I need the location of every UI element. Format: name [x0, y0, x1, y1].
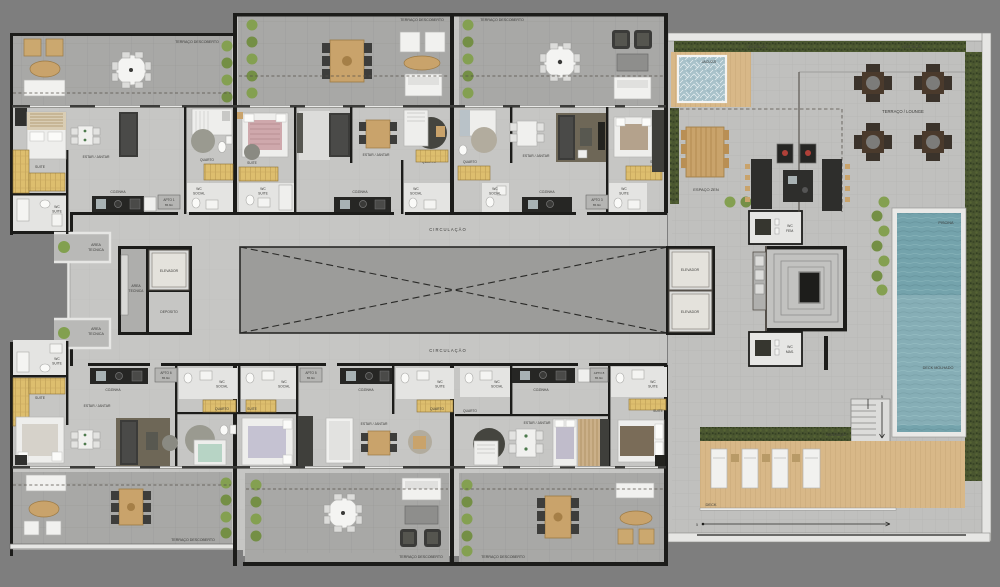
svg-text:WC: WC	[650, 380, 656, 384]
svg-text:ESTAR / JANTAR: ESTAR / JANTAR	[361, 422, 388, 426]
svg-text:QUARTO: QUARTO	[200, 158, 214, 162]
svg-text:PISCINA: PISCINA	[938, 221, 954, 225]
svg-text:AREA: AREA	[91, 327, 101, 331]
svg-text:QUARTO: QUARTO	[463, 409, 477, 413]
svg-text:5: 5	[881, 395, 883, 399]
svg-text:QUARTO: QUARTO	[463, 160, 477, 164]
svg-text:QUARTO: QUARTO	[430, 407, 444, 411]
svg-text:FEM.: FEM.	[786, 229, 794, 233]
svg-text:VEGETAÇÃO: VEGETAÇÃO	[902, 44, 923, 49]
svg-text:DECK MOLHADO: DECK MOLHADO	[923, 366, 954, 370]
svg-text:APTO 8: APTO 8	[594, 371, 605, 375]
svg-text:SOCIAL: SOCIAL	[410, 192, 422, 196]
svg-text:ELEVADOR: ELEVADOR	[681, 268, 700, 272]
svg-text:ESTAR / JANTAR: ESTAR / JANTAR	[84, 404, 111, 408]
svg-text:TERRAÇO / LOUNGE: TERRAÇO / LOUNGE	[882, 109, 924, 114]
svg-text:ESTAR / JANTAR: ESTAR / JANTAR	[524, 421, 551, 425]
svg-text:TERRAÇO DESCOBERTO: TERRAÇO DESCOBERTO	[175, 40, 219, 44]
svg-text:TERRAÇO DESCOBERTO: TERRAÇO DESCOBERTO	[480, 18, 524, 22]
svg-text:SOCIAL: SOCIAL	[489, 192, 501, 196]
svg-text:WC: WC	[787, 224, 793, 228]
svg-text:TECNICA: TECNICA	[88, 248, 104, 252]
svg-text:WC: WC	[219, 380, 225, 384]
svg-text:VEGETAÇÃO: VEGETAÇÃO	[747, 44, 768, 49]
svg-text:65.9m: 65.9m	[307, 376, 316, 380]
svg-text:WC: WC	[621, 187, 627, 191]
svg-text:SUITE: SUITE	[35, 165, 46, 169]
svg-text:SUITE: SUITE	[648, 385, 659, 389]
svg-text:ESTAR / JANTAR: ESTAR / JANTAR	[523, 154, 550, 158]
svg-text:TECNICA: TECNICA	[129, 289, 145, 293]
svg-text:JACUZZI: JACUZZI	[702, 60, 717, 64]
svg-text:APTO 6: APTO 6	[160, 371, 172, 375]
svg-text:VEGETAÇÃO: VEGETAÇÃO	[826, 432, 847, 437]
svg-text:ESPAÇO ZEN: ESPAÇO ZEN	[693, 187, 719, 192]
svg-text:COZINHA: COZINHA	[539, 190, 555, 194]
svg-text:SUITE: SUITE	[435, 385, 446, 389]
svg-text:SUITE: SUITE	[35, 396, 46, 400]
svg-text:SUITE: SUITE	[247, 407, 258, 411]
svg-text:ELEVADOR: ELEVADOR	[160, 269, 179, 273]
svg-text:WC: WC	[437, 380, 443, 384]
svg-text:WC: WC	[54, 357, 60, 361]
svg-text:WC: WC	[260, 187, 266, 191]
svg-text:SOCIAL: SOCIAL	[491, 385, 503, 389]
svg-text:COZINHA: COZINHA	[352, 190, 368, 194]
svg-text:APTO 1: APTO 1	[163, 198, 175, 202]
svg-text:TERRAÇO DESCOBERTO: TERRAÇO DESCOBERTO	[171, 538, 215, 542]
svg-text:DEPOSITO: DEPOSITO	[160, 310, 178, 314]
svg-text:SOCIAL: SOCIAL	[278, 385, 290, 389]
svg-text:WC: WC	[281, 380, 287, 384]
svg-text:APTO 3: APTO 3	[591, 198, 603, 202]
svg-text:65.9m: 65.9m	[162, 376, 171, 380]
svg-text:WC: WC	[787, 345, 793, 349]
svg-text:65.9m: 65.9m	[593, 203, 602, 207]
svg-text:COZINHA: COZINHA	[110, 190, 126, 194]
svg-text:APTO 5: APTO 5	[305, 371, 317, 375]
svg-text:ELEVADOR: ELEVADOR	[681, 310, 700, 314]
svg-text:COZINHA: COZINHA	[358, 388, 374, 392]
svg-text:WC: WC	[54, 205, 60, 209]
svg-text:ESTAR / JANTAR: ESTAR / JANTAR	[363, 153, 390, 157]
svg-text:CIRCULAÇÃO: CIRCULAÇÃO	[429, 348, 466, 353]
svg-text:WC: WC	[492, 187, 498, 191]
svg-text:QUARTO: QUARTO	[215, 407, 229, 411]
svg-text:65.9m: 65.9m	[595, 376, 604, 380]
svg-text:TERRAÇO DESCOBERTO: TERRAÇO DESCOBERTO	[481, 555, 525, 559]
svg-text:WC: WC	[413, 187, 419, 191]
svg-text:AREA: AREA	[131, 284, 141, 288]
svg-text:WC: WC	[494, 380, 500, 384]
svg-text:COZINHA: COZINHA	[533, 388, 549, 392]
svg-text:SUITE: SUITE	[653, 409, 664, 413]
svg-text:TERRAÇO DESCOBERTO: TERRAÇO DESCOBERTO	[400, 18, 444, 22]
svg-text:SUITE: SUITE	[619, 192, 630, 196]
svg-text:SUITE: SUITE	[52, 362, 63, 366]
svg-text:SUITE: SUITE	[258, 192, 269, 196]
svg-text:SUITE: SUITE	[52, 210, 63, 214]
svg-text:65.9m: 65.9m	[165, 203, 174, 207]
svg-text:TECNICA: TECNICA	[88, 332, 104, 336]
svg-text:ESTAR / JANTAR: ESTAR / JANTAR	[83, 155, 110, 159]
svg-text:SOCIAL: SOCIAL	[193, 192, 205, 196]
svg-text:CIRCULAÇÃO: CIRCULAÇÃO	[429, 227, 466, 232]
svg-text:5: 5	[696, 523, 698, 527]
svg-text:AREA: AREA	[91, 243, 101, 247]
svg-text:SOCIAL: SOCIAL	[216, 385, 228, 389]
svg-text:SUITE: SUITE	[247, 161, 258, 165]
svg-text:WC: WC	[196, 187, 202, 191]
svg-text:DECK: DECK	[705, 502, 716, 507]
svg-text:MAS.: MAS.	[786, 350, 794, 354]
svg-text:TERRAÇO DESCOBERTO: TERRAÇO DESCOBERTO	[399, 555, 443, 559]
svg-text:COZINHA: COZINHA	[105, 388, 121, 392]
